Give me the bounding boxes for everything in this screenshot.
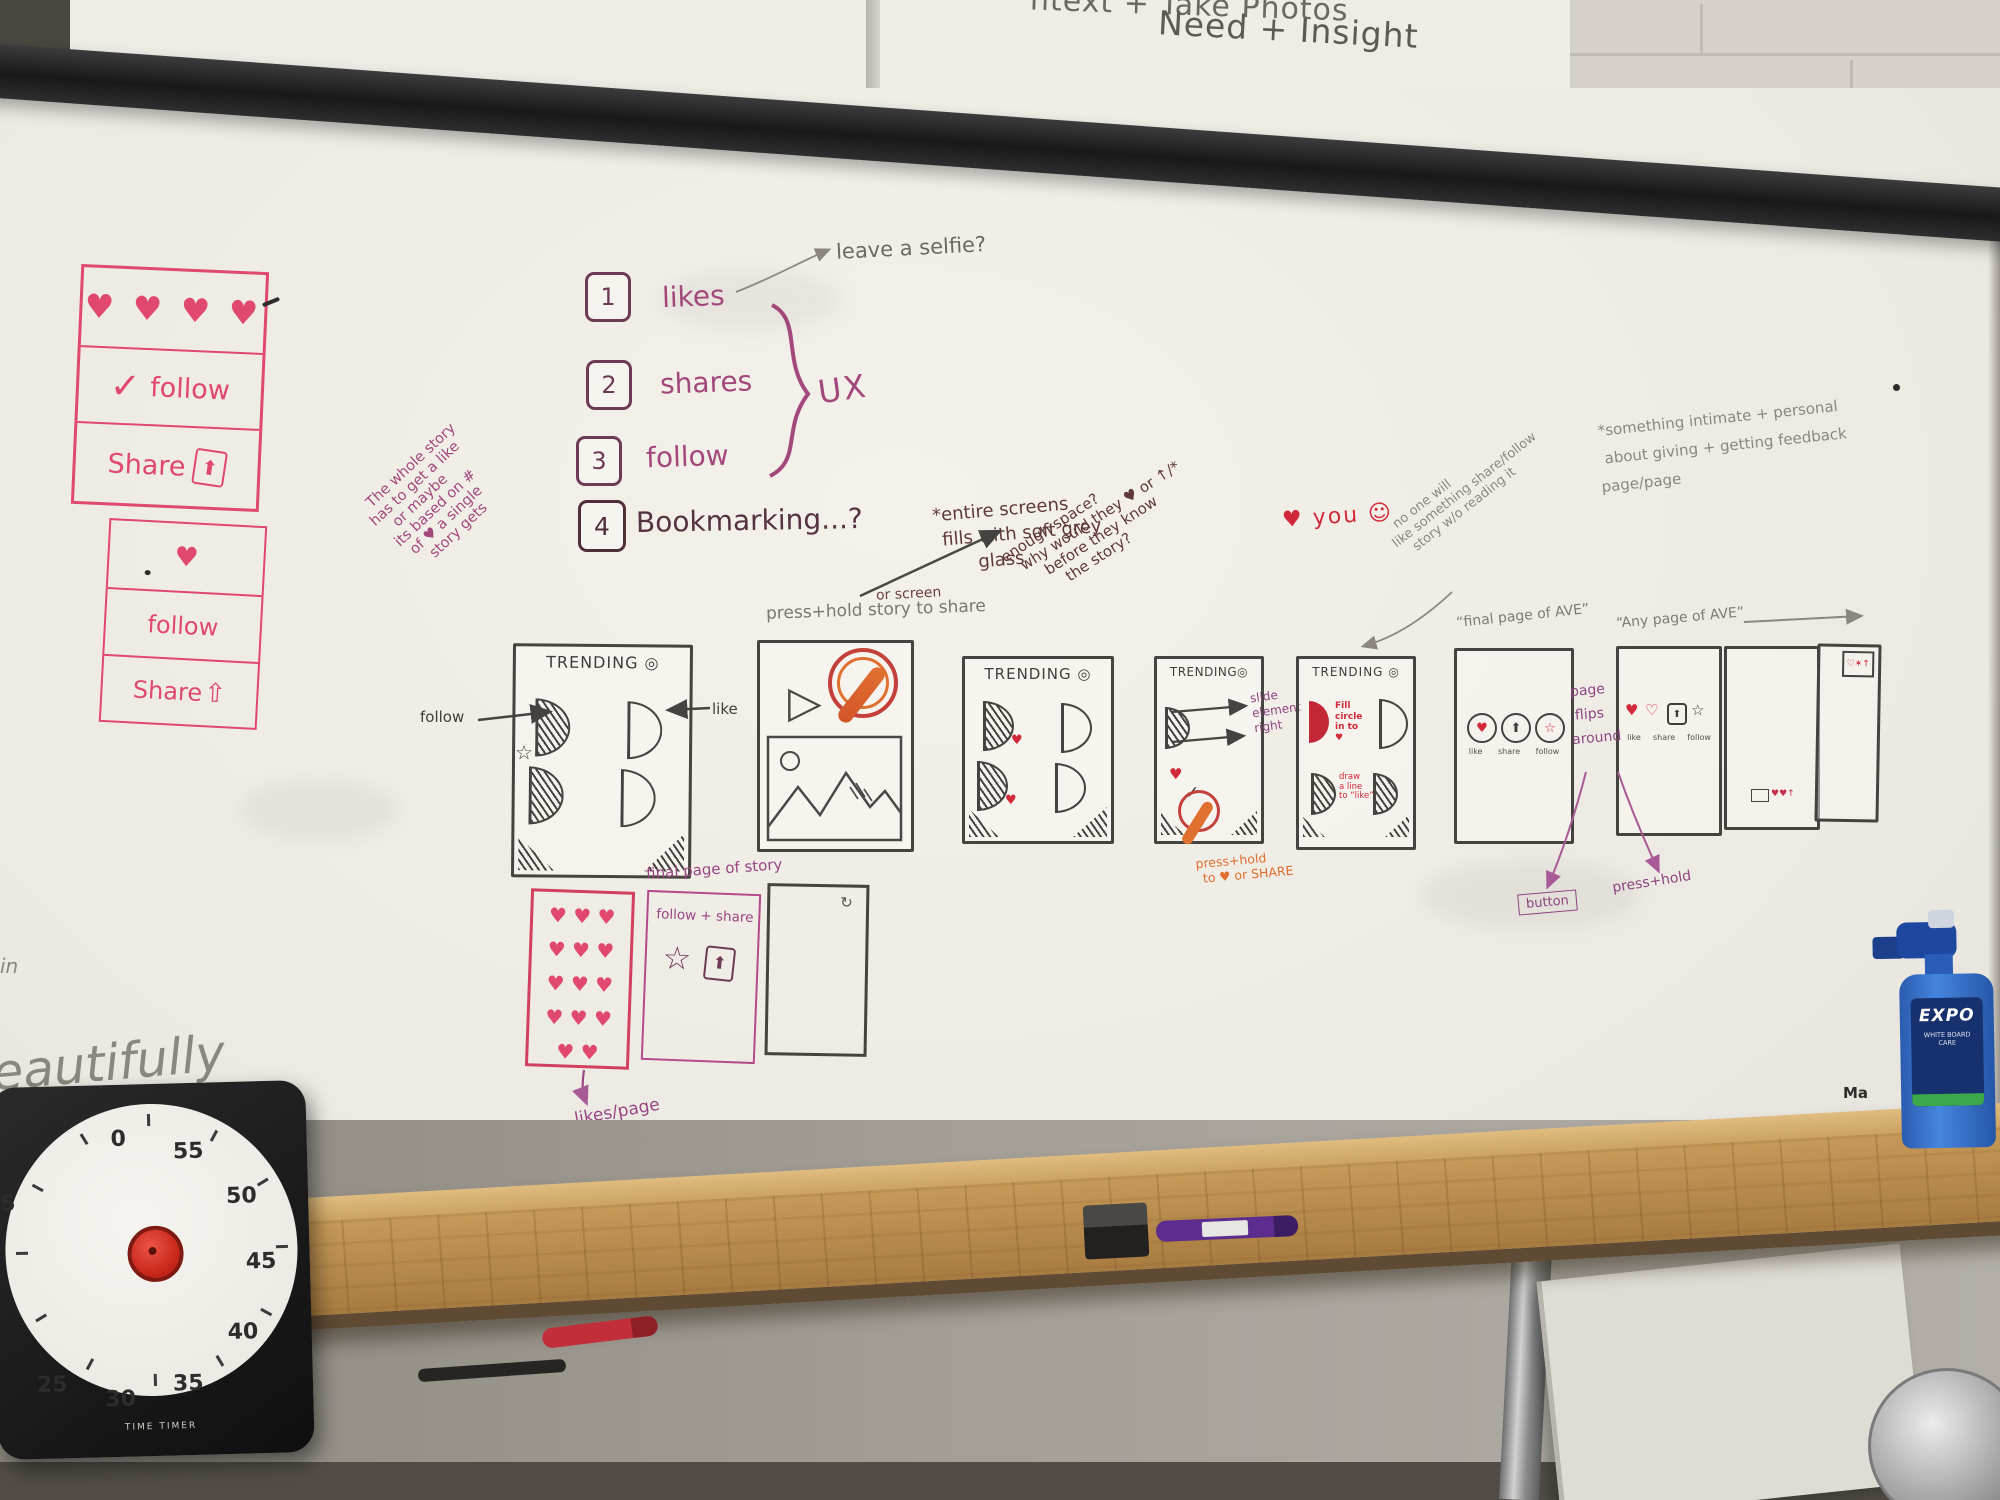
target-icon: ◎ [1077, 665, 1091, 683]
wireframe-blank-1: ♥♥↑ [1724, 646, 1820, 830]
timer-num-25: 25 [37, 1372, 68, 1398]
star-icon: ☆ [1544, 721, 1556, 736]
halfmoon-filled [535, 698, 571, 756]
timer-tick [79, 1133, 88, 1145]
share-icon: ⬆ [1673, 709, 1681, 720]
list-label-likes: likes [661, 279, 725, 314]
list-num-1: 1 [585, 272, 631, 322]
corner-glyphs: ♡✶↑ [1847, 659, 1870, 669]
wireframe-final-ave: ♥ ⬆ ☆ like share follow [1454, 648, 1574, 844]
timer-tick [209, 1130, 217, 1142]
wireframe-blank-2: ♡✶↑ [1814, 643, 1881, 822]
share-icon: ⬆ [1511, 721, 1522, 736]
follow-row: ✓ follow [77, 347, 262, 431]
heart-row: ♥ ♥ ♥ [531, 931, 630, 968]
ux-brace-label: UX [816, 367, 870, 411]
trending-header: TRENDING ◎ [965, 665, 1111, 683]
trending-header: TRENDING ◎ [516, 652, 690, 673]
pink-panel-top: ♥ ♥ ♥ ♥ ✓ follow Share ⬆ [71, 264, 269, 512]
target-icon: ◎ [1388, 665, 1399, 679]
halfmoon-filled [1311, 773, 1336, 815]
blank-page-panel: ↻ [765, 883, 870, 1057]
halfmoon-outline [1379, 699, 1408, 749]
timer-brand: TIME TIMER [106, 1420, 216, 1433]
note-line: circle [1335, 712, 1362, 723]
share-row: Share ⇧ [101, 656, 258, 728]
like-label: like [1469, 747, 1483, 756]
note-draw-line: draw a line to “like” [1339, 773, 1374, 802]
timer-tick [35, 1314, 47, 1323]
heart-row: ♥ ♥ ♥ [533, 897, 632, 934]
board-brand-fragment: Ma [1843, 1084, 1868, 1102]
num-3: 3 [591, 447, 606, 475]
expo-spray-bottle: EXPO WHITE BOARD CARE [1872, 909, 2000, 1149]
note-line: to “like” [1339, 792, 1374, 802]
timer-tick [275, 1245, 287, 1248]
hatch-corner [1385, 815, 1409, 837]
halfmoon-filled [1165, 707, 1190, 749]
trending-header: TRENDING ◎ [1299, 665, 1413, 679]
heart-icon: ♥ [1005, 793, 1017, 808]
timer-tick [260, 1308, 272, 1316]
timer-tick [215, 1355, 224, 1367]
heart-icon: ♥ [1169, 765, 1182, 783]
note-line: in to [1335, 722, 1362, 733]
like-arrow-label: like [712, 700, 738, 718]
note-page-flips: page flips around [1569, 676, 1622, 752]
timer-num-40: 40 [227, 1319, 258, 1345]
halfmoon-filled [977, 761, 1008, 811]
share-box-icon: ⬆ [703, 945, 736, 982]
timer-knob[interactable] [127, 1225, 184, 1282]
follow-arrow-label: follow [420, 708, 464, 726]
share-row: Share ⬆ [74, 423, 259, 509]
board-eraser [1083, 1202, 1150, 1259]
heart-row: ♥ [108, 520, 265, 597]
hatch-corner [518, 836, 554, 870]
refresh-icon: ↻ [840, 893, 853, 911]
share-up-icon: ⇧ [203, 678, 226, 709]
list-num-3: 3 [576, 436, 622, 486]
target-icon: ◎ [1237, 665, 1248, 679]
list-label-bookmarking: Bookmarking...? [636, 502, 863, 539]
list-num-4: 4 [578, 500, 626, 552]
note-line: ♥ [1335, 733, 1362, 744]
timer-num-35: 35 [173, 1371, 204, 1397]
timer-tick [15, 1252, 27, 1255]
label-green-stripe [1912, 1093, 1984, 1106]
timer-tick [85, 1358, 93, 1370]
note-line: Fill [1335, 701, 1362, 712]
expo-label-line2: CARE [1911, 1038, 1983, 1047]
halfmoon-outline [627, 701, 663, 759]
finger-press-sketch [828, 648, 898, 718]
hatch-corner [1073, 807, 1107, 837]
wireframe-trending-1: TRENDING ◎ ☆ [511, 643, 693, 879]
follow-label: follow [1536, 747, 1560, 756]
hatch-corner [1303, 817, 1325, 837]
heart-icon: ♥ [1625, 701, 1638, 719]
target-icon: ◎ [645, 653, 660, 672]
hearts-grid-panel: ♥ ♥ ♥ ♥ ♥ ♥ ♥ ♥ ♥ ♥ ♥ ♥ ♥ ♥ [525, 888, 635, 1070]
trending-label: TRENDING [1170, 665, 1237, 679]
heart-icon: ♥ [1011, 733, 1023, 748]
num-2: 2 [601, 371, 616, 399]
list-label-shares: shares [659, 364, 752, 400]
heart-row: ♥ ♥ ♥ [529, 999, 628, 1036]
follow-label: follow [1687, 733, 1711, 742]
bottle-label: EXPO WHITE BOARD CARE [1910, 997, 1984, 1106]
filled-red-halfmoon [1309, 701, 1329, 743]
halfmoon-outline [1061, 703, 1092, 753]
follow-share-label: follow + share [656, 906, 754, 926]
finger-press-sketch-small [1178, 790, 1220, 832]
share-circle: ⬆ [1501, 713, 1531, 743]
halfmoon-filled [1373, 773, 1398, 815]
share-label: share [1498, 747, 1520, 756]
trending-label: TRENDING [985, 665, 1072, 683]
mini-glyphs: ♥♥↑ [1771, 789, 1795, 799]
hatch-corner [1231, 811, 1257, 835]
corner-glyph-box: ♡✶↑ [1842, 651, 1874, 678]
heart-icon: ♥ [1476, 721, 1488, 736]
list-label-follow: follow [645, 439, 729, 475]
photo-sketch [766, 735, 904, 843]
share-box-icon: ⬆ [1667, 703, 1687, 725]
halfmoon-outline [620, 769, 656, 827]
trending-label: TRENDING [1312, 665, 1383, 679]
pen-dot [145, 570, 151, 575]
like-label: like [1627, 733, 1641, 742]
timer-num-0: 0 [110, 1127, 126, 1152]
follow-share-panel: follow + share ☆ ⬆ [641, 890, 761, 1064]
trending-label: TRENDING [546, 653, 639, 673]
play-icon: ▷ [788, 677, 822, 728]
heart-row: ♥ ♥ ♥ [530, 965, 629, 1002]
mini-glyph-box [1751, 789, 1769, 802]
share-icon: ⬆ [191, 448, 228, 488]
wireframe-trending-4: TRENDING ◎ Fill circle in to ♥ draw a li… [1296, 656, 1416, 850]
share-label: share [1653, 733, 1675, 742]
wireframe-trending-2: TRENDING ◎ ♥ ♥ [962, 656, 1114, 844]
star-icon: ☆ [1691, 701, 1704, 719]
note-fill-circle: Fill circle in to ♥ [1335, 701, 1362, 743]
note-line: around [1571, 724, 1622, 752]
halfmoon-filled [983, 701, 1014, 751]
heart-outline-icon: ♡ [1645, 701, 1658, 719]
heart-row: ♥ ♥ [528, 1033, 627, 1070]
share-icon: ⬆ [711, 953, 727, 974]
bottle-body: EXPO WHITE BOARD CARE [1899, 973, 1996, 1149]
list-num-2: 2 [586, 360, 632, 410]
share-label: Share [107, 448, 186, 482]
timer-num-30: 30 [105, 1386, 136, 1412]
hatch-corner [969, 809, 999, 837]
star-icon: ☆ [662, 939, 692, 978]
num-4: 4 [594, 512, 610, 541]
brick-joint [1700, 4, 1703, 56]
hearts-row: ♥ ♥ ♥ ♥ [81, 267, 266, 355]
eraser-body [1084, 1224, 1150, 1259]
eraser-smudge [240, 780, 400, 840]
board-seam [866, 0, 880, 90]
pen-dot [1893, 384, 1900, 391]
timer-num-55: 55 [173, 1139, 204, 1165]
pink-panel-bottom: ♥ follow Share ⇧ [99, 518, 267, 730]
timer-num-50: 50 [226, 1183, 257, 1209]
marker-label [1202, 1220, 1249, 1237]
fragment-in: in [0, 954, 18, 978]
num-1: 1 [600, 283, 615, 311]
wireframe-any-page: ♥ ♡ ⬆ ☆ like share follow [1616, 646, 1722, 836]
whiteboard-photo: ntext + Take Photos Need + Insight ♥ ♥ ♥… [0, 0, 2000, 1500]
follow-row: follow [104, 589, 261, 663]
circle-labels: like share follow [1461, 747, 1567, 756]
timer-tick [146, 1114, 149, 1126]
leaning-panel [1536, 1244, 1924, 1500]
expo-brand: EXPO [1911, 1005, 1983, 1026]
time-timer: 0 55 50 45 40 35 30 25 5 TIME TIMER [0, 1080, 315, 1460]
like-circle: ♥ [1467, 713, 1497, 743]
star-icon: ☆ [515, 740, 533, 764]
heart-icon: ♥ [174, 542, 200, 574]
check-icon: ✓ [109, 365, 141, 407]
share-label: Share [132, 675, 203, 707]
timer-tick [153, 1374, 156, 1386]
trending-header: TRENDING◎ [1157, 665, 1261, 679]
halfmoon-filled [528, 766, 564, 824]
timer-num-5: 5 [0, 1192, 16, 1217]
follow-label: follow [150, 372, 231, 406]
halfmoon-outline [1055, 763, 1086, 813]
timer-num-45: 45 [245, 1249, 276, 1275]
follow-circle: ☆ [1535, 713, 1565, 743]
timer-tick [256, 1178, 268, 1187]
marker-cap [1273, 1215, 1298, 1237]
knob-center-dot [148, 1247, 156, 1255]
icon-labels: like share follow [1621, 733, 1717, 742]
bottle-cap [1928, 910, 1954, 928]
timer-tick [31, 1184, 43, 1192]
